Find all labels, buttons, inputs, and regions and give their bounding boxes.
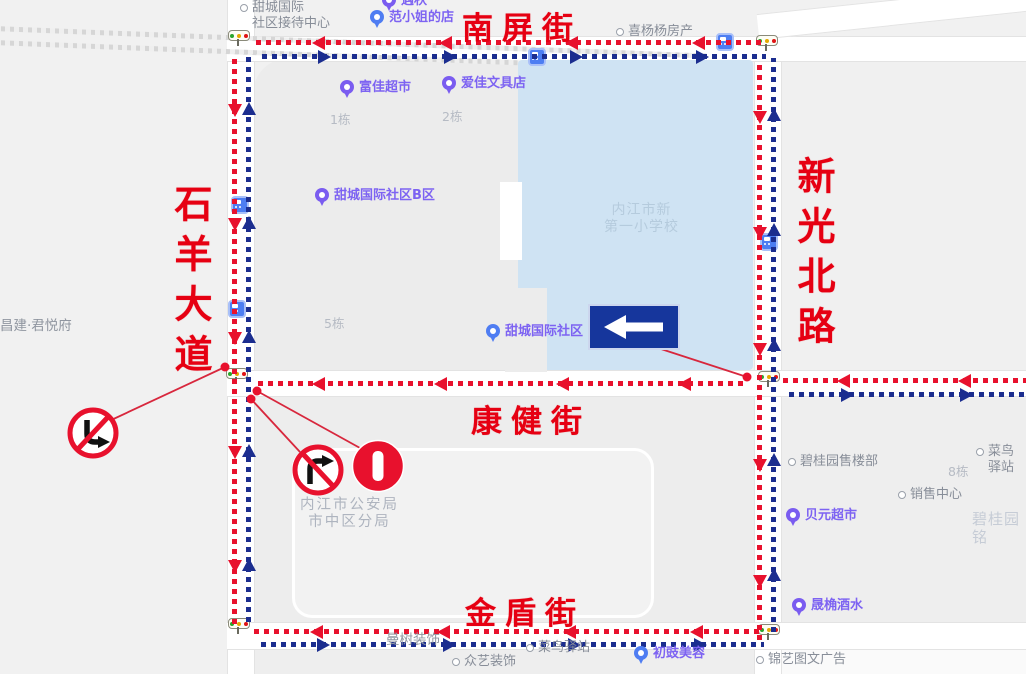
no-right-turn-sign: [292, 444, 344, 496]
no-entry-sign: [351, 439, 405, 493]
one-way-left-sign: [588, 304, 680, 350]
map-canvas[interactable]: 南屏街 石羊大道 新光北路 康健街 金盾街 甜城国际 社区接待中心遇秋范小姐的店…: [0, 0, 1026, 674]
sign-leader-lines: [0, 0, 1026, 674]
no-left-turn-sign: [67, 407, 119, 459]
